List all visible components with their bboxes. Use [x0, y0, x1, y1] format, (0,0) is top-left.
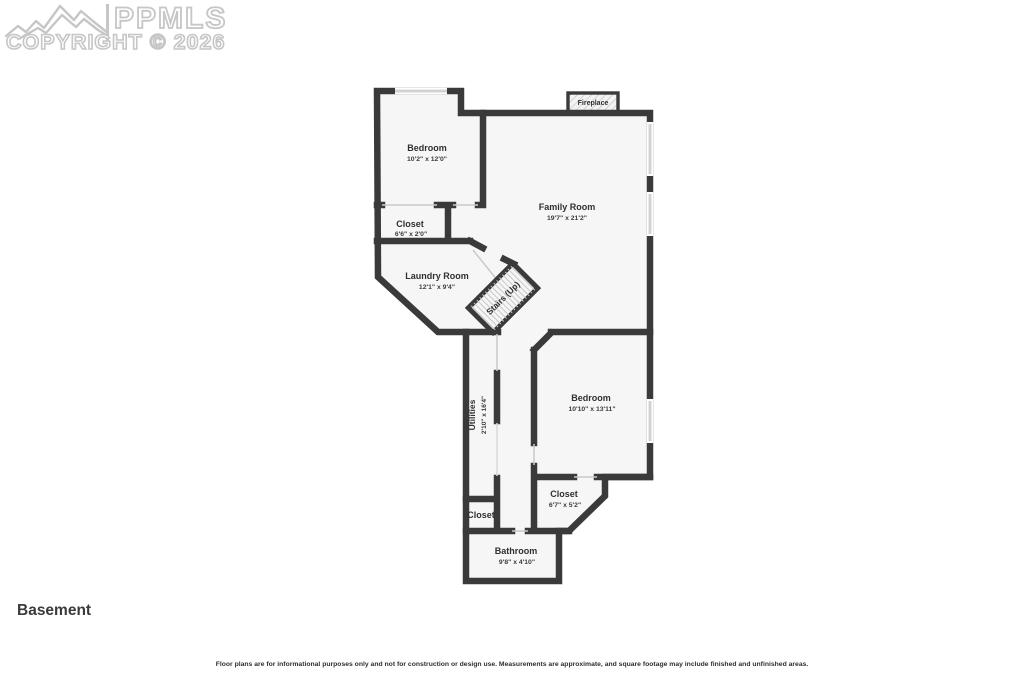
floor-area	[377, 91, 650, 581]
fireplace: Fireplace	[568, 93, 618, 112]
room-label-bathroom: Bathroom	[495, 546, 538, 556]
room-dims-utilities: 2'10" x 16'4"	[481, 396, 488, 434]
room-label-closet-lower: Closet	[550, 489, 578, 499]
window-bedroom-lower	[647, 399, 654, 443]
room-label-closet-upper: Closet	[396, 219, 424, 229]
room-label-utilities: Utilities	[467, 399, 477, 430]
floor-name-label: Basement	[17, 602, 91, 620]
fireplace-label: Fireplace	[578, 100, 609, 107]
room-label-closet-small: Closet	[467, 510, 495, 520]
room-dims-bedroom-lower: 10'10" x 13'11"	[568, 406, 615, 413]
floor-plan-canvas: Fireplace	[0, 0, 1024, 682]
room-label-bedroom-upper: Bedroom	[407, 143, 447, 153]
room-dims-closet-upper: 6'6" x 2'0"	[395, 231, 427, 238]
window-bedroom-upper	[395, 88, 447, 95]
room-label-bedroom-lower: Bedroom	[571, 393, 611, 403]
room-dims-closet-lower: 6'7" x 5'2"	[549, 502, 581, 509]
room-dims-family: 19'7" x 21'2"	[547, 215, 587, 222]
window-family-room-2	[647, 192, 654, 236]
room-dims-laundry: 12'1" x 9'4"	[419, 284, 455, 291]
window-family-room-1	[647, 122, 654, 176]
room-label-laundry: Laundry Room	[405, 271, 469, 281]
room-dims-bedroom-upper: 10'2" x 12'0"	[407, 156, 447, 163]
floorplan-page: PPMLS COPYRIGHT © 2026 Fireplace	[0, 0, 1024, 682]
disclaimer-text: Floor plans are for informational purpos…	[0, 661, 1024, 668]
room-dims-bathroom: 9'8" x 4'10"	[499, 559, 535, 566]
room-label-family: Family Room	[539, 202, 596, 212]
